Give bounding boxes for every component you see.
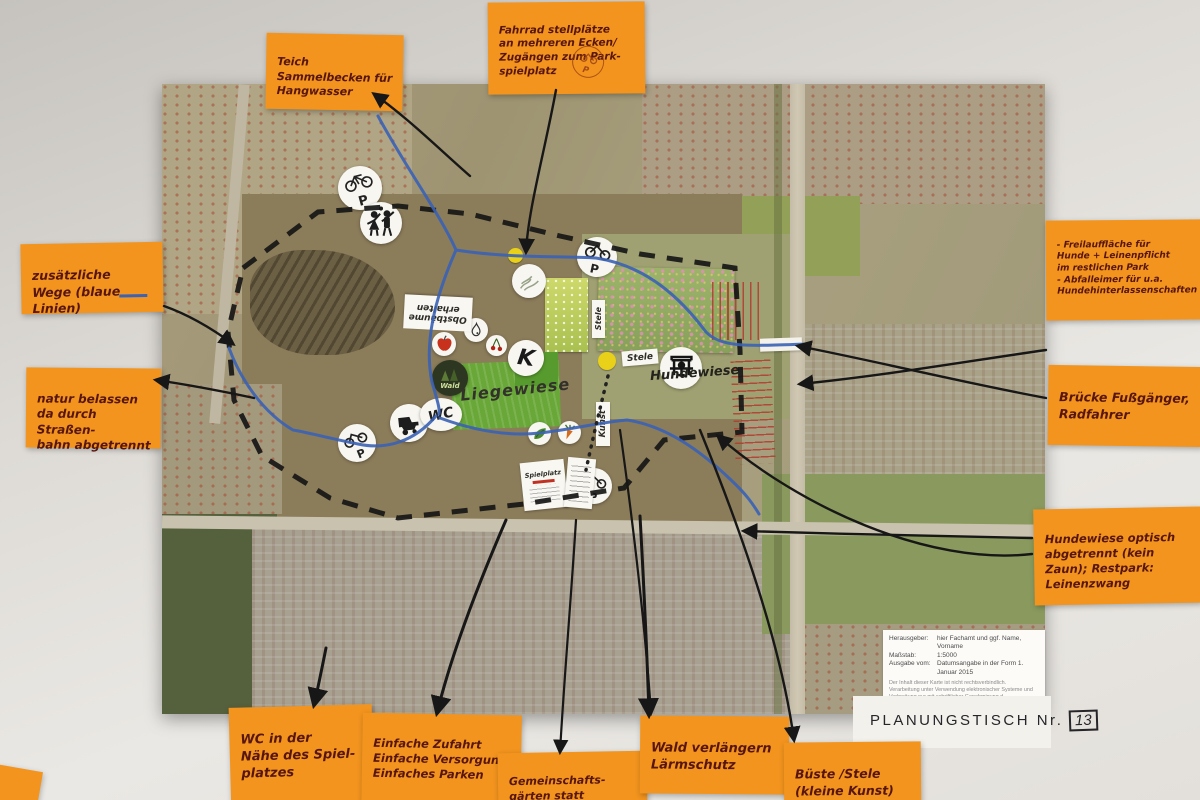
sticky-fahrrad: Fahrrad stellplätze an mehreren Ecken/ Z… [488,1,646,94]
main-road-vertical [790,84,805,714]
sticky-einfach-text: Einfache Zufahrt Einfache Versorgung Ein… [373,736,508,782]
svg-text:P: P [589,261,601,277]
imprint-label: Herausgeber: [889,635,937,652]
leaf-sticker [528,422,551,445]
sticky-freilauf-text: - Freilauffläche für Hunde + Leinenpflic… [1057,239,1197,297]
carrot-sticker [558,421,581,444]
sticky-freilauf: - Freilauffläche für Hunde + Leinenpflic… [1046,219,1200,320]
aerial-map: P [162,84,1045,714]
spielplatz-sketch [529,483,561,502]
sticky-fahrrad-text: Fahrrad stellplätze an mehreren Ecken/ Z… [499,23,621,77]
spielplatz-text: Spielplatz [524,468,561,480]
suburb-left-lower [162,384,282,514]
carrot-icon [561,424,579,442]
bicycle-p-icon: P [579,237,616,277]
sticky-gemeinschaft-text: Gemeinschafts- gärten statt [509,774,606,800]
apple-icon [435,335,454,354]
suburb-right-mid [802,324,1045,474]
hatch-zone-upper [706,282,762,340]
playing-children-icon [364,206,398,240]
svg-text:P: P [581,65,590,76]
imprint-row: Ausgabe vom: Datumsangabe in der Form 1.… [889,660,1039,677]
tree-line [774,84,782,714]
cherries-sticker [486,335,507,356]
sticky-wc: WC in der Nähe des Spiel- platzes [229,704,375,800]
obstbaeume-label: Obstbäume erhalten [403,294,473,332]
sticky-bruecke-text: Brücke Fußgänger, Radfahrer [1059,389,1190,421]
sticky-wald-text: Wald verlängern Lärmschutz [651,740,772,773]
sticky-hundewiese: Hundewiese optisch abgetrennt (kein Zaun… [1033,507,1200,606]
small-list-note [564,457,596,509]
playing-children-sticker [360,202,402,244]
imprint-label: Ausgabe vom: [889,660,937,677]
sticky-teich-text: Teich Sammelbecken für Hangwasser [277,55,393,98]
meadow-sketch-icon [516,268,542,294]
bicycle-p-icon: P [576,48,601,76]
map-imprint-box: Herausgeber: hier Fachamt und ggf. Name,… [883,630,1045,706]
stele-text: Stele [627,351,654,363]
urban-bottom [252,524,812,714]
meadow-photo-yellow [545,278,588,352]
board-title-label: PLANUNGSTISCH Nr. [870,712,1063,729]
sticky-wald: Wald verlängern Lärmschutz [640,715,790,794]
letter-k-icon: K [516,344,536,371]
stele-vertical-text: Stele [594,307,603,330]
stele-label-vertical: Stele [592,300,605,338]
sticky-natur: natur belassen da durch Straßen- bahn ab… [26,367,162,448]
wc-sticker: WC [420,398,462,431]
kunst-label-vertical: Kunst [596,402,610,446]
suburb-top-right [642,84,1045,204]
sticky-wege: zusätzliche Wege (blaue Linien) [20,242,163,314]
sticky-teich: Teich Sammelbecken für Hangwasser [265,33,403,111]
sticky-gemeinschaft: Gemeinschafts- gärten statt [497,751,647,800]
sticky-wege-text: zusätzliche Wege (blaue Linien) [32,267,121,316]
sticky-bruecke: Brücke Fußgänger, Radfahrer [1047,365,1200,447]
leaf-icon [531,425,549,443]
blue-line-sample [119,294,147,297]
imprint-row: Maßstab: 1:5000 [889,652,1039,660]
board-title-number: 13 [1069,710,1098,732]
stele-label: Stele [621,348,658,366]
forest-icon [438,366,462,383]
obstbaeume-text: Obstbäume erhalten [408,301,467,325]
imprint-value: hier Fachamt und ggf. Name, Vorname [937,635,1039,652]
wald-sticker-label: Wald [440,383,459,390]
imprint-value: Datumsangabe in der Form 1. Januar 2015 [937,660,1039,677]
bridge-strip [760,337,802,351]
sticky-wc-text: WC in der Nähe des Spiel- platzes [240,731,355,782]
spielplatz-note: Spielplatz [520,459,569,511]
imprint-row: Herausgeber: hier Fachamt und ggf. Name,… [889,635,1039,652]
yellow-marker-dot [508,248,523,263]
cherries-icon [488,337,505,354]
svg-text:P: P [355,446,367,461]
imprint-label: Maßstab: [889,652,937,660]
sticky-natur-text: natur belassen da durch Straßen- bahn ab… [37,391,151,453]
apple-sticker [432,332,456,356]
yellow-marker-dot [598,352,616,370]
planning-board-photo: P [0,0,1200,800]
wc-icon: WC [427,404,455,425]
list-note-lines [568,463,591,503]
meadow-sketch-sticker [512,264,546,298]
kunst-text: Kunst [598,410,608,437]
imprint-value: 1:5000 [937,652,1039,660]
sticky-bueste: Büste /Stele (kleine Kunst) [784,741,922,800]
board-title: PLANUNGSTISCH Nr. 13 [870,710,1098,731]
sticky-bueste-text: Büste /Stele (kleine Kunst) [795,766,894,798]
sticky-fragment [0,764,43,800]
sticky-hundewiese-text: Hundewiese optisch abgetrennt (kein Zaun… [1045,530,1176,591]
